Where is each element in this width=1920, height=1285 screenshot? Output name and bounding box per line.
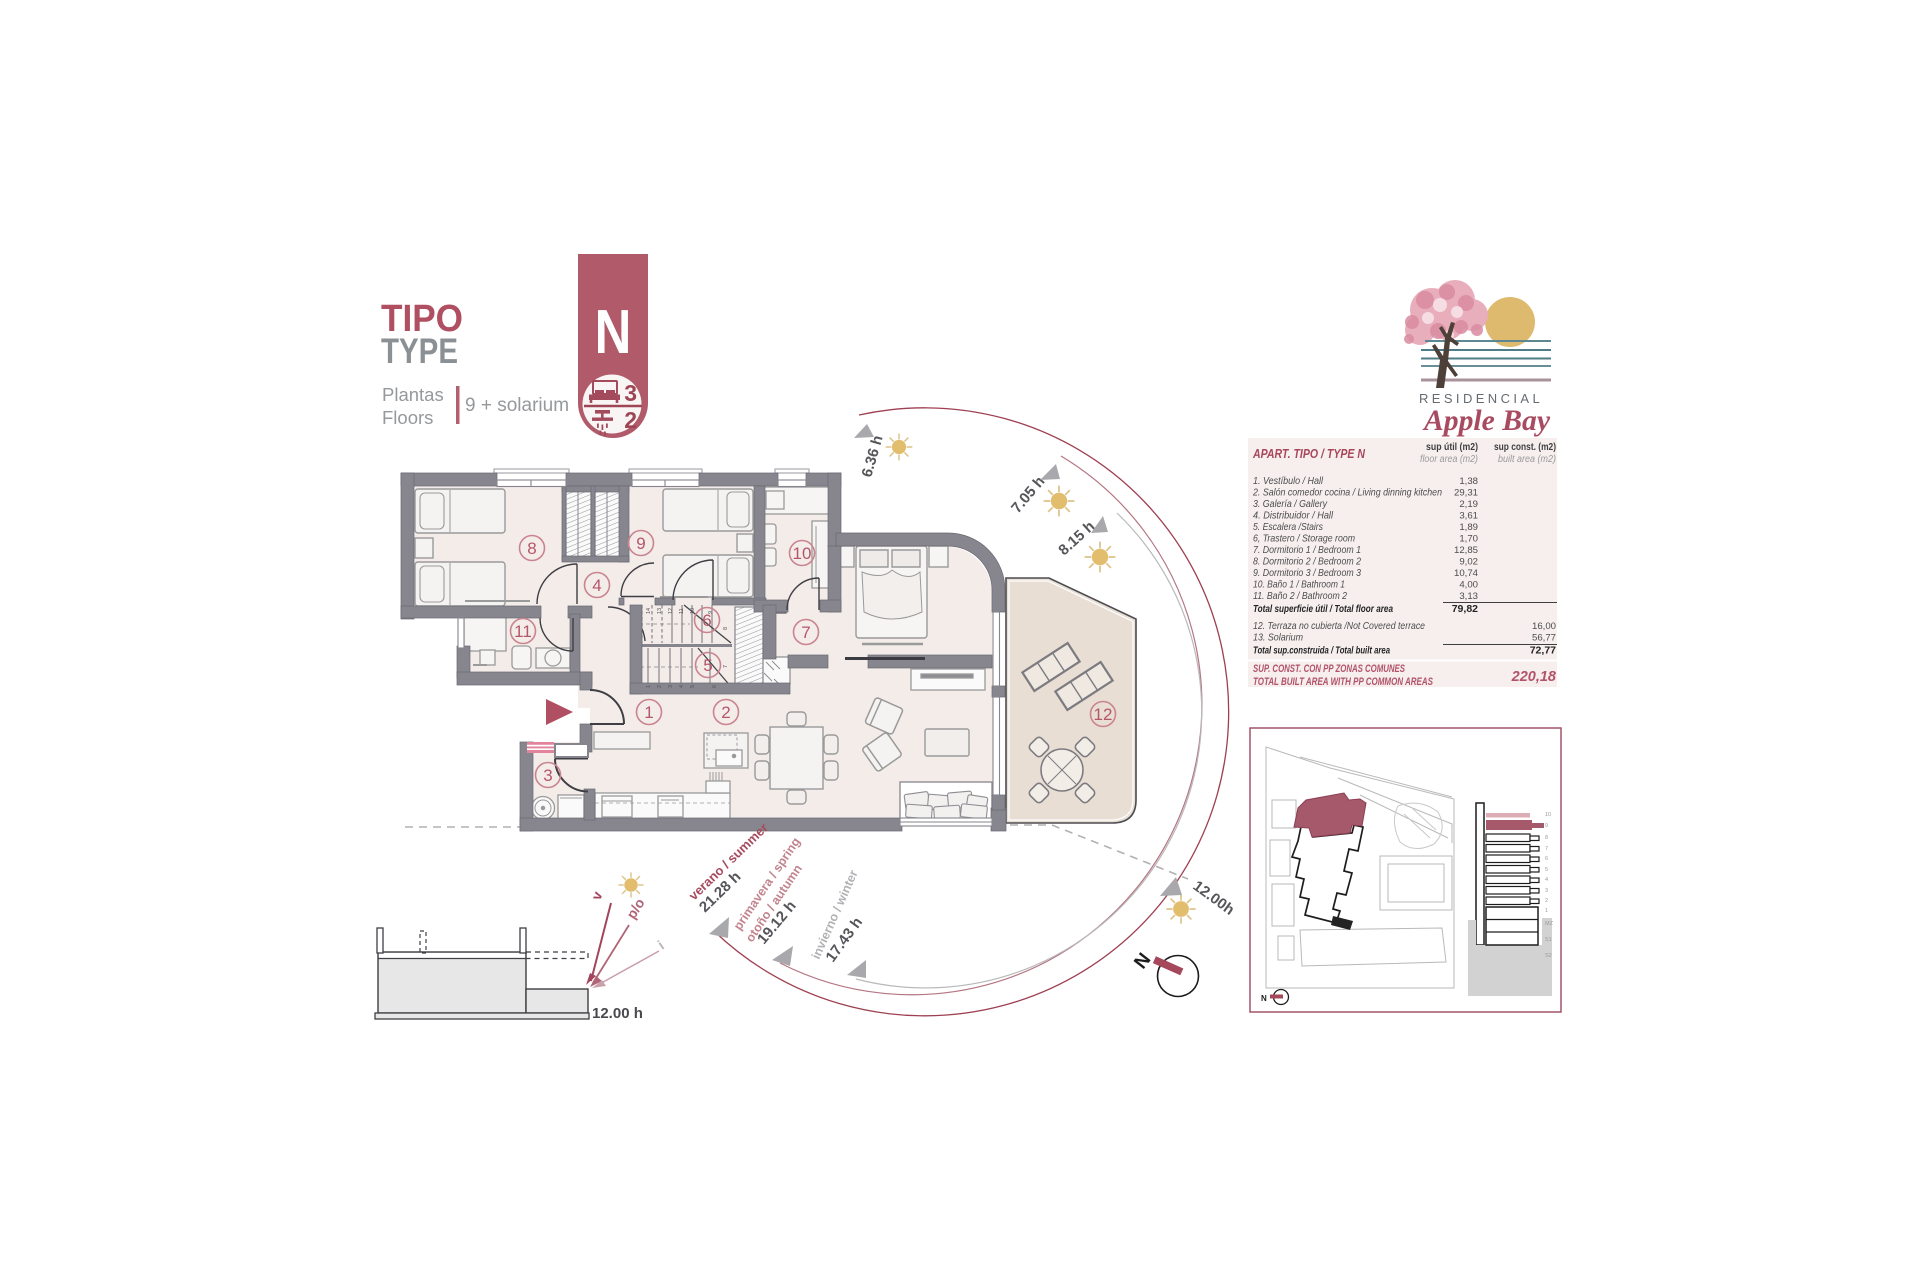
svg-text:3: 3 — [543, 766, 552, 785]
svg-text:built area (m2): built area (m2) — [1498, 453, 1556, 465]
svg-text:1: 1 — [646, 685, 652, 688]
svg-text:4. Distribuidor / Hall: 4. Distribuidor / Hall — [1253, 511, 1334, 522]
svg-text:11. Baño 2 / Bathroom 2: 11. Baño 2 / Bathroom 2 — [1253, 591, 1347, 602]
svg-text:12,85: 12,85 — [1454, 545, 1478, 556]
svg-text:6: 6 — [712, 685, 718, 688]
svg-text:1,38: 1,38 — [1459, 476, 1478, 487]
svg-text:10: 10 — [1545, 812, 1551, 818]
svg-text:5: 5 — [1545, 867, 1548, 873]
svg-text:S2: S2 — [1545, 953, 1552, 959]
svg-text:6: 6 — [1545, 856, 1548, 862]
svg-text:TYPE: TYPE — [381, 332, 458, 371]
svg-text:11: 11 — [679, 608, 685, 614]
svg-text:3: 3 — [668, 685, 674, 688]
svg-text:12. Terraza no cubierta /Not C: 12. Terraza no cubierta /Not Covered ter… — [1253, 621, 1425, 632]
svg-text:SUP. CONST. CON PP ZONAS COMUN: SUP. CONST. CON PP ZONAS COMUNES — [1253, 663, 1405, 675]
svg-text:4: 4 — [679, 685, 685, 688]
svg-text:5. Escalera /Stairs: 5. Escalera /Stairs — [1253, 522, 1323, 533]
svg-text:9. Dormitorio 3 / Bedroom 3: 9. Dormitorio 3 / Bedroom 3 — [1253, 568, 1361, 579]
svg-text:N: N — [595, 298, 632, 367]
svg-text:N: N — [1261, 994, 1267, 1003]
svg-text:MZ: MZ — [1545, 921, 1554, 927]
svg-text:13: 13 — [657, 608, 663, 614]
svg-text:9: 9 — [1545, 823, 1548, 829]
svg-text:Apple Bay: Apple Bay — [1422, 404, 1551, 437]
svg-text:Total sup.construida / Total b: Total sup.construida / Total built area — [1253, 646, 1390, 657]
svg-text:1: 1 — [1545, 908, 1548, 914]
svg-text:8: 8 — [527, 539, 536, 558]
svg-text:TOTAL BUILT AREA WITH PP COMMO: TOTAL BUILT AREA WITH PP COMMON AREAS — [1253, 676, 1433, 688]
svg-text:1: 1 — [644, 703, 653, 722]
svg-text:9 + solarium: 9 + solarium — [465, 395, 569, 416]
svg-text:10: 10 — [793, 544, 812, 563]
svg-text:S1: S1 — [1545, 937, 1552, 943]
svg-text:4,00: 4,00 — [1459, 580, 1478, 591]
svg-text:9,02: 9,02 — [1459, 557, 1478, 568]
svg-text:8: 8 — [723, 627, 729, 630]
svg-text:5: 5 — [690, 685, 696, 688]
svg-text:14: 14 — [646, 608, 652, 614]
svg-text:floor area (m2): floor area (m2) — [1420, 453, 1478, 465]
svg-text:12: 12 — [1094, 705, 1113, 724]
svg-text:72,77: 72,77 — [1530, 645, 1556, 657]
svg-text:8. Dormitorio 2 / Bedroom 2: 8. Dormitorio 2 / Bedroom 2 — [1253, 557, 1361, 568]
svg-text:2: 2 — [657, 685, 663, 688]
svg-text:Floors: Floors — [382, 407, 433, 428]
svg-text:8: 8 — [1545, 835, 1548, 841]
svg-text:1,70: 1,70 — [1459, 534, 1478, 545]
svg-text:2. Salón comedor cocina / Livi: 2. Salón comedor cocina / Living dinning… — [1252, 488, 1442, 499]
svg-text:16,00: 16,00 — [1532, 621, 1556, 632]
svg-text:56,77: 56,77 — [1532, 633, 1556, 644]
svg-text:1,89: 1,89 — [1459, 522, 1478, 533]
svg-text:9: 9 — [636, 534, 645, 553]
svg-text:10,74: 10,74 — [1454, 568, 1479, 579]
svg-text:sup const. (m2): sup const. (m2) — [1494, 441, 1556, 453]
svg-text:3: 3 — [624, 380, 637, 406]
svg-text:10. Baño 1 / Bathroom 1: 10. Baño 1 / Bathroom 1 — [1253, 580, 1345, 591]
svg-text:2: 2 — [1545, 898, 1548, 904]
svg-text:sup útil (m2): sup útil (m2) — [1426, 441, 1478, 453]
svg-text:3,61: 3,61 — [1459, 511, 1478, 522]
svg-text:APART. TIPO / TYPE N: APART. TIPO / TYPE N — [1252, 446, 1365, 461]
svg-text:13. Solarium: 13. Solarium — [1253, 633, 1303, 644]
svg-text:12.00 h: 12.00 h — [592, 1005, 643, 1022]
svg-text:2: 2 — [624, 407, 637, 433]
svg-text:5: 5 — [703, 656, 712, 675]
svg-text:220,18: 220,18 — [1511, 669, 1557, 685]
svg-text:3: 3 — [1545, 888, 1548, 894]
svg-text:3,13: 3,13 — [1459, 591, 1478, 602]
svg-text:1. Vestíbulo / Hall: 1. Vestíbulo / Hall — [1253, 476, 1324, 487]
svg-text:7: 7 — [1545, 846, 1548, 852]
svg-text:79,82: 79,82 — [1452, 603, 1478, 615]
svg-text:3. Galería / Gallery: 3. Galería / Gallery — [1253, 499, 1328, 510]
svg-text:6, Trastero / Storage room: 6, Trastero / Storage room — [1253, 534, 1355, 545]
svg-text:7: 7 — [723, 665, 729, 668]
svg-text:2,19: 2,19 — [1459, 499, 1478, 510]
svg-text:10: 10 — [690, 608, 696, 614]
svg-text:7. Dormitorio 1 / Bedroom 1: 7. Dormitorio 1 / Bedroom 1 — [1253, 545, 1361, 556]
svg-text:6: 6 — [702, 611, 711, 630]
svg-text:4: 4 — [592, 576, 601, 595]
svg-text:2: 2 — [721, 703, 730, 722]
svg-text:11: 11 — [514, 622, 532, 641]
svg-text:12: 12 — [668, 608, 674, 614]
svg-text:29,31: 29,31 — [1454, 488, 1478, 499]
svg-text:Plantas: Plantas — [382, 384, 444, 405]
svg-text:Total superficie útil / Total: Total superficie útil / Total floor area — [1253, 604, 1393, 615]
svg-text:4: 4 — [1545, 877, 1548, 883]
svg-text:7: 7 — [801, 623, 810, 642]
